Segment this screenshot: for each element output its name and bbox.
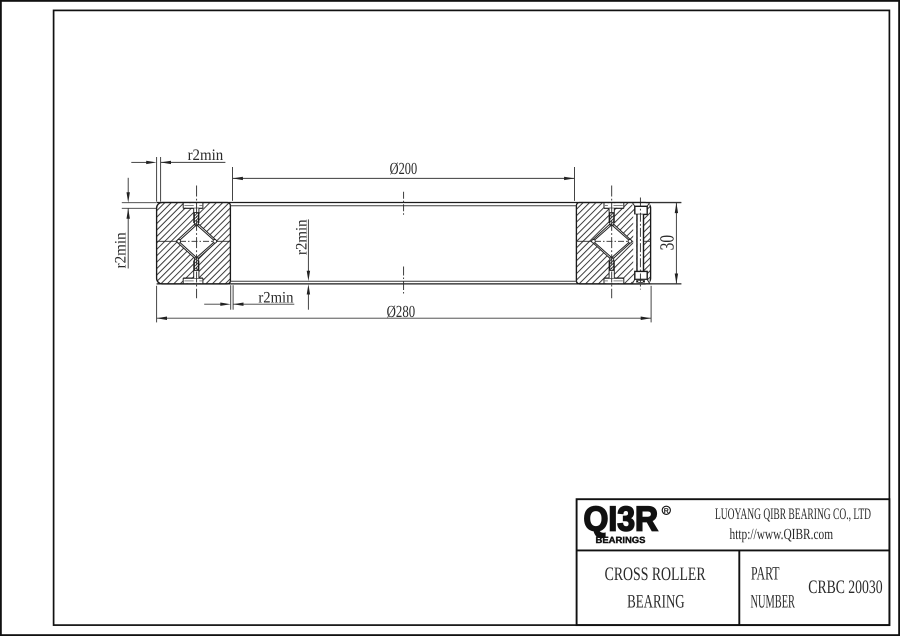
- svg-text:BEARING: BEARING: [627, 592, 685, 613]
- svg-text:BEARINGS: BEARINGS: [596, 535, 646, 545]
- svg-text:QI3R: QI3R: [584, 501, 659, 539]
- svg-text:LUOYANG QIBR BEARING CO., LTD: LUOYANG QIBR BEARING CO., LTD: [715, 506, 871, 523]
- svg-text:http://www.QIBR.com: http://www.QIBR.com: [730, 526, 834, 543]
- svg-text:Ø280: Ø280: [387, 302, 416, 321]
- svg-text:r2min: r2min: [258, 290, 293, 307]
- svg-text:30: 30: [656, 235, 678, 251]
- svg-text:CRBC 20030: CRBC 20030: [808, 577, 882, 598]
- svg-text:Ø200: Ø200: [390, 159, 418, 178]
- svg-text:R: R: [664, 508, 669, 515]
- svg-text:NUMBER: NUMBER: [751, 592, 796, 613]
- svg-text:r2min: r2min: [293, 219, 310, 255]
- svg-text:r2min: r2min: [188, 147, 224, 164]
- svg-text:PART: PART: [751, 564, 780, 585]
- svg-text:CROSS ROLLER: CROSS ROLLER: [605, 564, 706, 585]
- svg-text:r2min: r2min: [113, 232, 130, 268]
